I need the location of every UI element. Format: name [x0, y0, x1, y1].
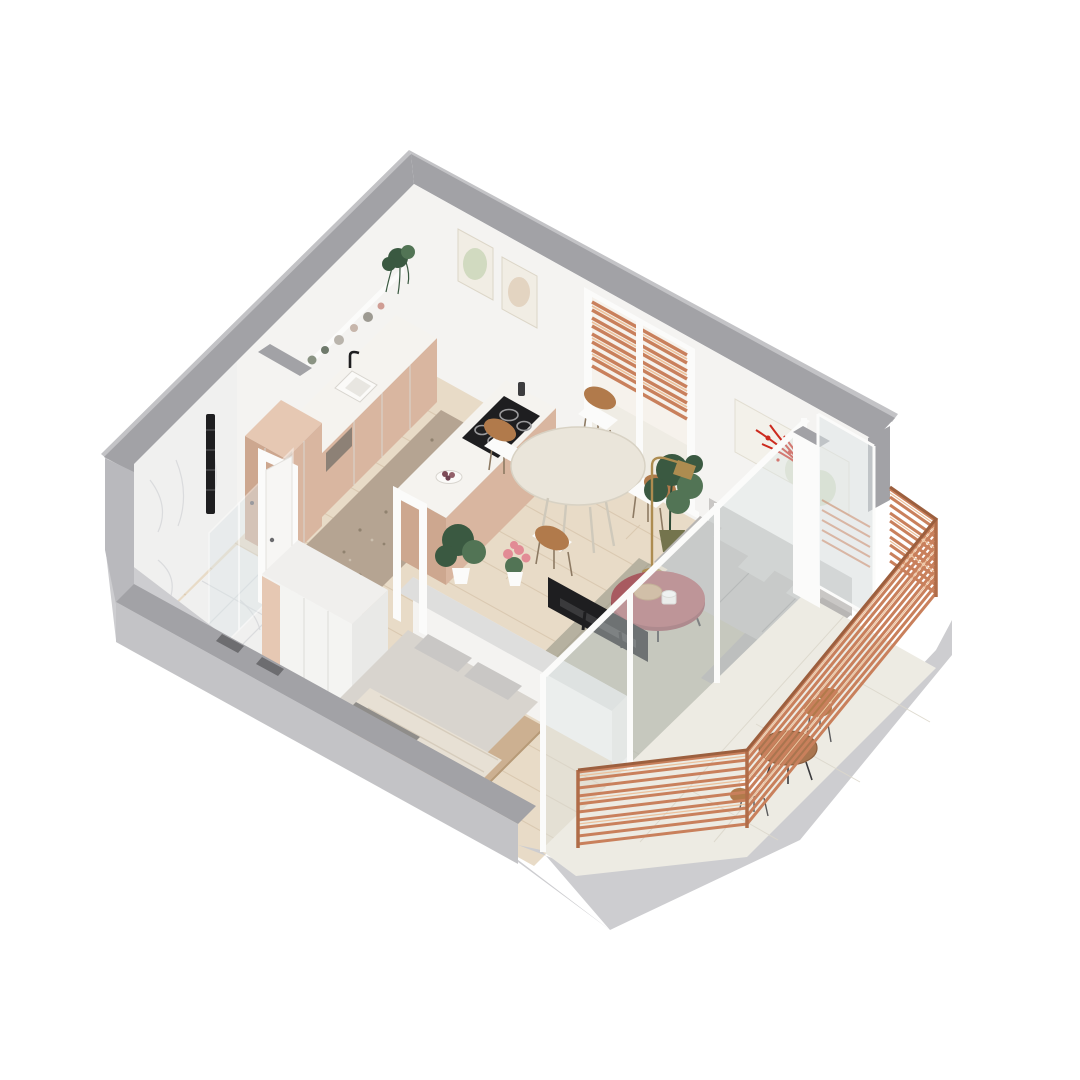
loggia-end-pane	[818, 414, 874, 618]
art-2-wash	[508, 277, 530, 307]
shelf-vessel-3	[334, 335, 344, 345]
shelf-vessel-6	[378, 303, 385, 310]
plant-pot-white	[452, 568, 470, 584]
island-vase	[518, 382, 525, 396]
dining-table-top	[511, 427, 645, 505]
shelf-vessel-4	[350, 324, 358, 332]
art-1-wash	[463, 248, 487, 280]
apartment-isometric-render: 3D isometric floor plan render of a stud…	[0, 0, 1080, 1080]
loggia-end-glass	[818, 414, 874, 618]
render-canvas: 3D isometric floor plan render of a stud…	[0, 0, 1080, 1080]
shelf-vessel-5	[363, 312, 373, 322]
glass-fitting-2	[250, 501, 254, 505]
shelf-vessel-2	[321, 346, 329, 354]
shelf-vessel-1	[308, 356, 317, 365]
towel-radiator	[206, 414, 215, 514]
glass-post-4	[540, 674, 546, 852]
glass-post-2	[714, 503, 720, 683]
bed-door-post-right	[419, 500, 427, 636]
fruit-3	[445, 475, 450, 480]
glass-corner-pillar	[793, 432, 820, 608]
bath-door-handle	[270, 538, 274, 542]
bed-door-post-left	[393, 486, 401, 622]
art-red-dot1	[766, 436, 771, 441]
glass-post-3	[627, 590, 633, 770]
